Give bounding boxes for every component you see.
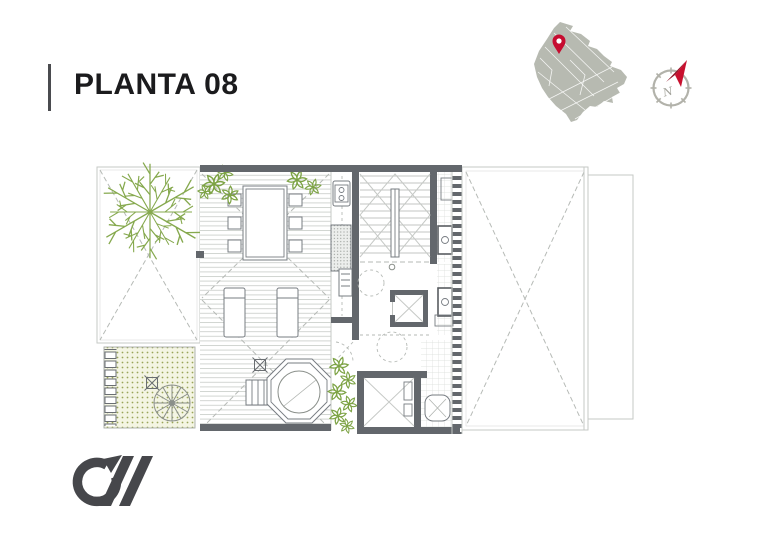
presentation-slide: PLANTA 08 [0, 0, 768, 543]
company-logo [0, 0, 768, 543]
